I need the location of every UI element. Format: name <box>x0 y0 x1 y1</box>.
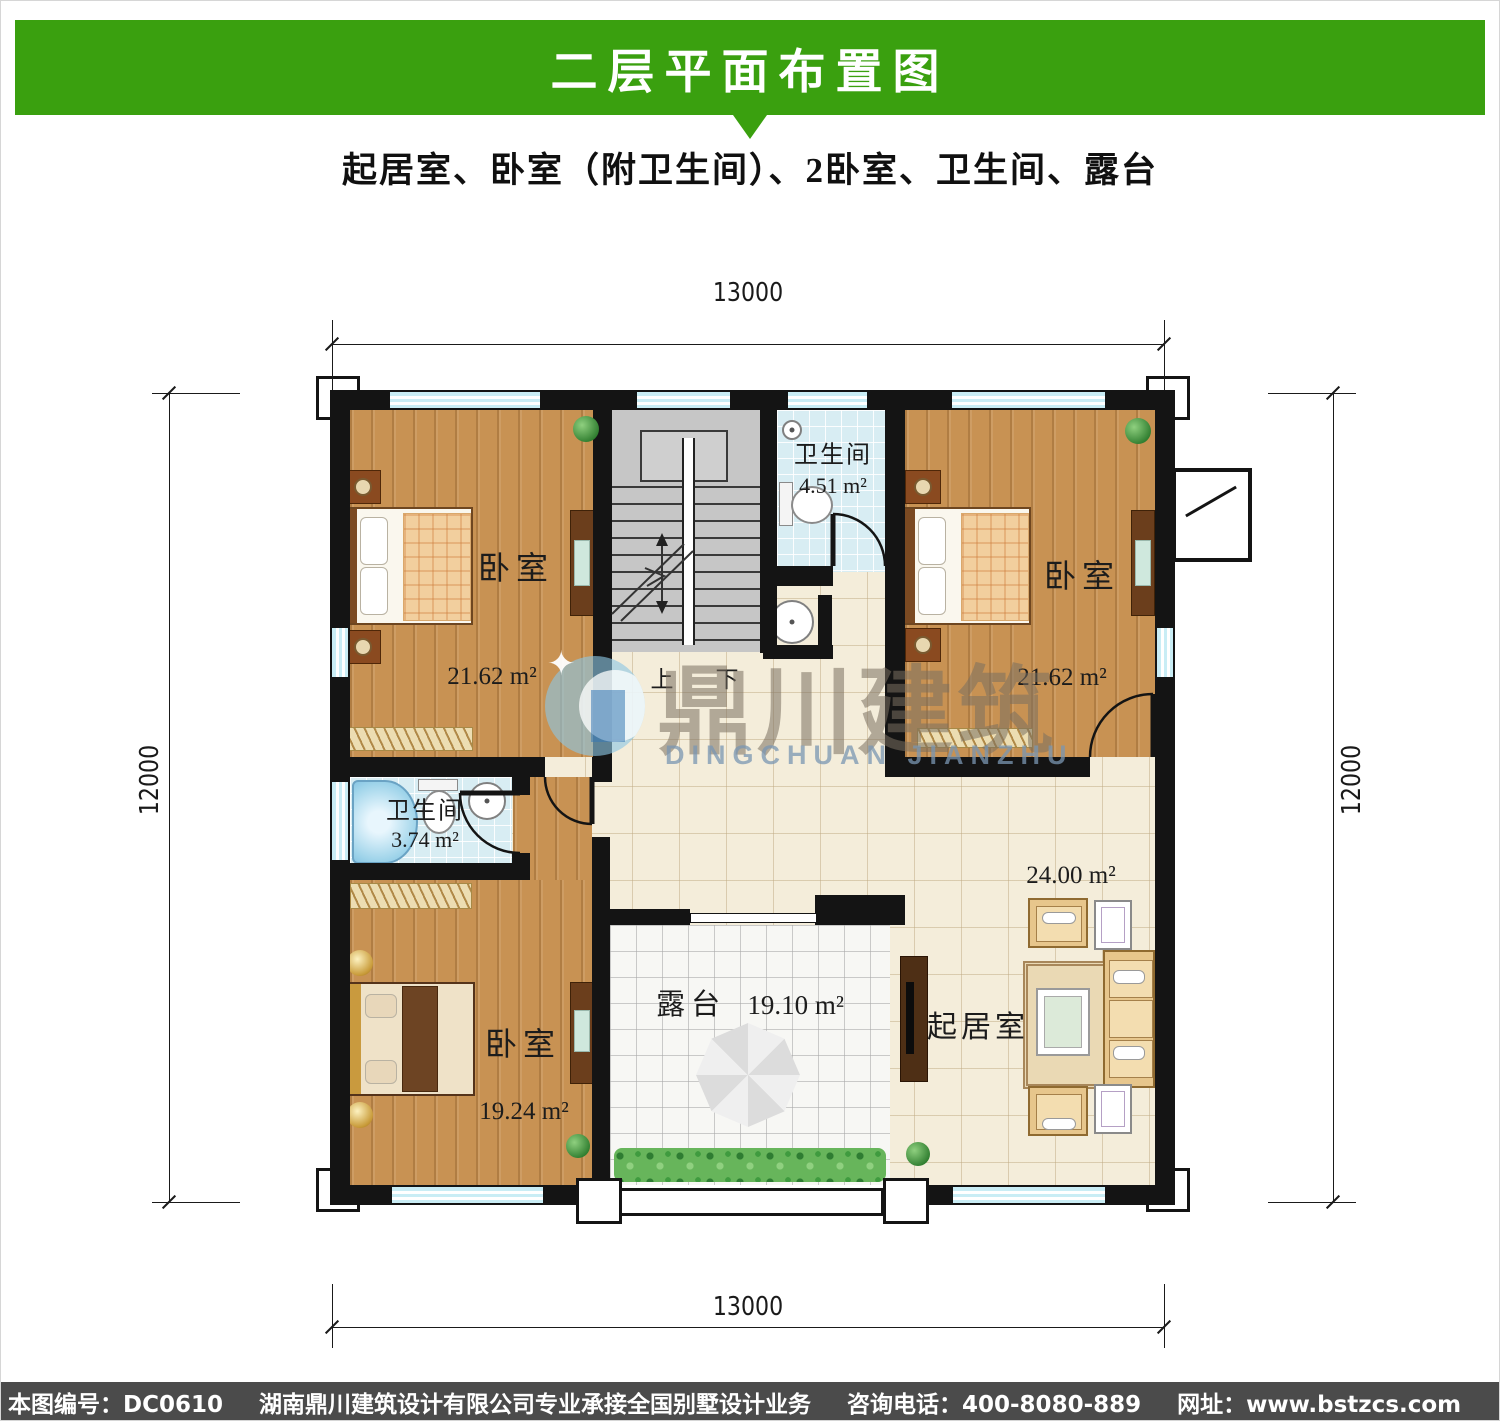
dim-top-line <box>332 344 1165 345</box>
door-arc <box>460 793 520 853</box>
dim-bottom-label: 13000 <box>663 1292 833 1322</box>
room-area-bedroom-tl: 21.62 m² <box>447 663 536 691</box>
room-label-bedroom-tl: 卧室 <box>478 543 554 589</box>
footer-drawing-number: 本图编号：DC0610 <box>8 1385 223 1419</box>
stairs-up-label: 上 <box>651 660 674 694</box>
dim-ext <box>1268 393 1356 394</box>
stair-arrow-up <box>656 533 668 546</box>
terrace-post <box>883 1178 929 1224</box>
door-arc <box>833 514 885 566</box>
wall-niche-box <box>1172 468 1252 562</box>
page-title: 二层平面布置图 <box>551 33 950 102</box>
dim-left-label: 12000 <box>135 716 165 844</box>
room-label-bath-left: 卫生间 <box>386 791 464 826</box>
room-area-bath-left: 3.74 m² <box>391 827 459 853</box>
room-label-bath-top: 卫生间 <box>794 435 872 470</box>
room-label-living: 起居室 <box>927 1002 1029 1046</box>
room-label-bedroom-bl: 卧室 <box>485 1019 561 1065</box>
title-banner: 二层平面布置图 <box>15 20 1485 115</box>
banner-pointer <box>733 115 767 139</box>
terrace-area: 19.10 m² <box>747 990 844 1020</box>
room-area-bath-top: 4.51 m² <box>799 473 867 499</box>
dim-top-label: 13000 <box>663 278 833 308</box>
dim-right-line <box>1333 393 1334 1203</box>
terrace-post <box>576 1178 622 1224</box>
terrace-name: 露台 <box>656 989 726 1021</box>
dim-ext <box>332 1284 333 1348</box>
floor-plan: 卧室 21.62 m² 卧室 21.62 m² 卧室 19.24 m² 卫生间 … <box>330 390 1175 1205</box>
footer-bar: 本图编号：DC0610 湖南鼎川建筑设计有限公司专业承接全国别墅设计业务 咨询电… <box>0 1382 1500 1421</box>
door-arc <box>1090 694 1153 757</box>
stair-break-line <box>621 551 693 621</box>
dim-ext <box>1164 1284 1165 1348</box>
door-arc <box>545 777 592 824</box>
dim-ext <box>1268 1202 1356 1203</box>
dim-left-line <box>169 393 170 1203</box>
dim-right-label: 12000 <box>1337 716 1367 844</box>
room-label-bedroom-tr: 卧室 <box>1044 551 1120 597</box>
dim-bottom-line <box>332 1327 1165 1328</box>
footer-company: 湖南鼎川建筑设计有限公司专业承接全国别墅设计业务 <box>259 1385 811 1419</box>
dim-ext <box>332 320 333 390</box>
stair-arrow-down <box>656 601 668 614</box>
room-area-living: 24.00 m² <box>1026 862 1115 890</box>
footer-phone: 咨询电话：400-8080-889 <box>847 1385 1141 1419</box>
stair-break-line <box>612 544 684 614</box>
plan-subtitle: 起居室、卧室（附卫生间）、2卧室、卫生间、露台 <box>0 142 1500 193</box>
room-area-bedroom-tr: 21.62 m² <box>1017 664 1106 692</box>
room-label-terrace: 露台 19.10 m² <box>656 981 844 1023</box>
footer-website: 网址：www.bstzcs.com <box>1177 1385 1461 1419</box>
room-area-bedroom-bl: 19.24 m² <box>479 1098 568 1126</box>
dim-ext <box>1164 320 1165 390</box>
stairs-down-label: 下 <box>716 660 739 694</box>
